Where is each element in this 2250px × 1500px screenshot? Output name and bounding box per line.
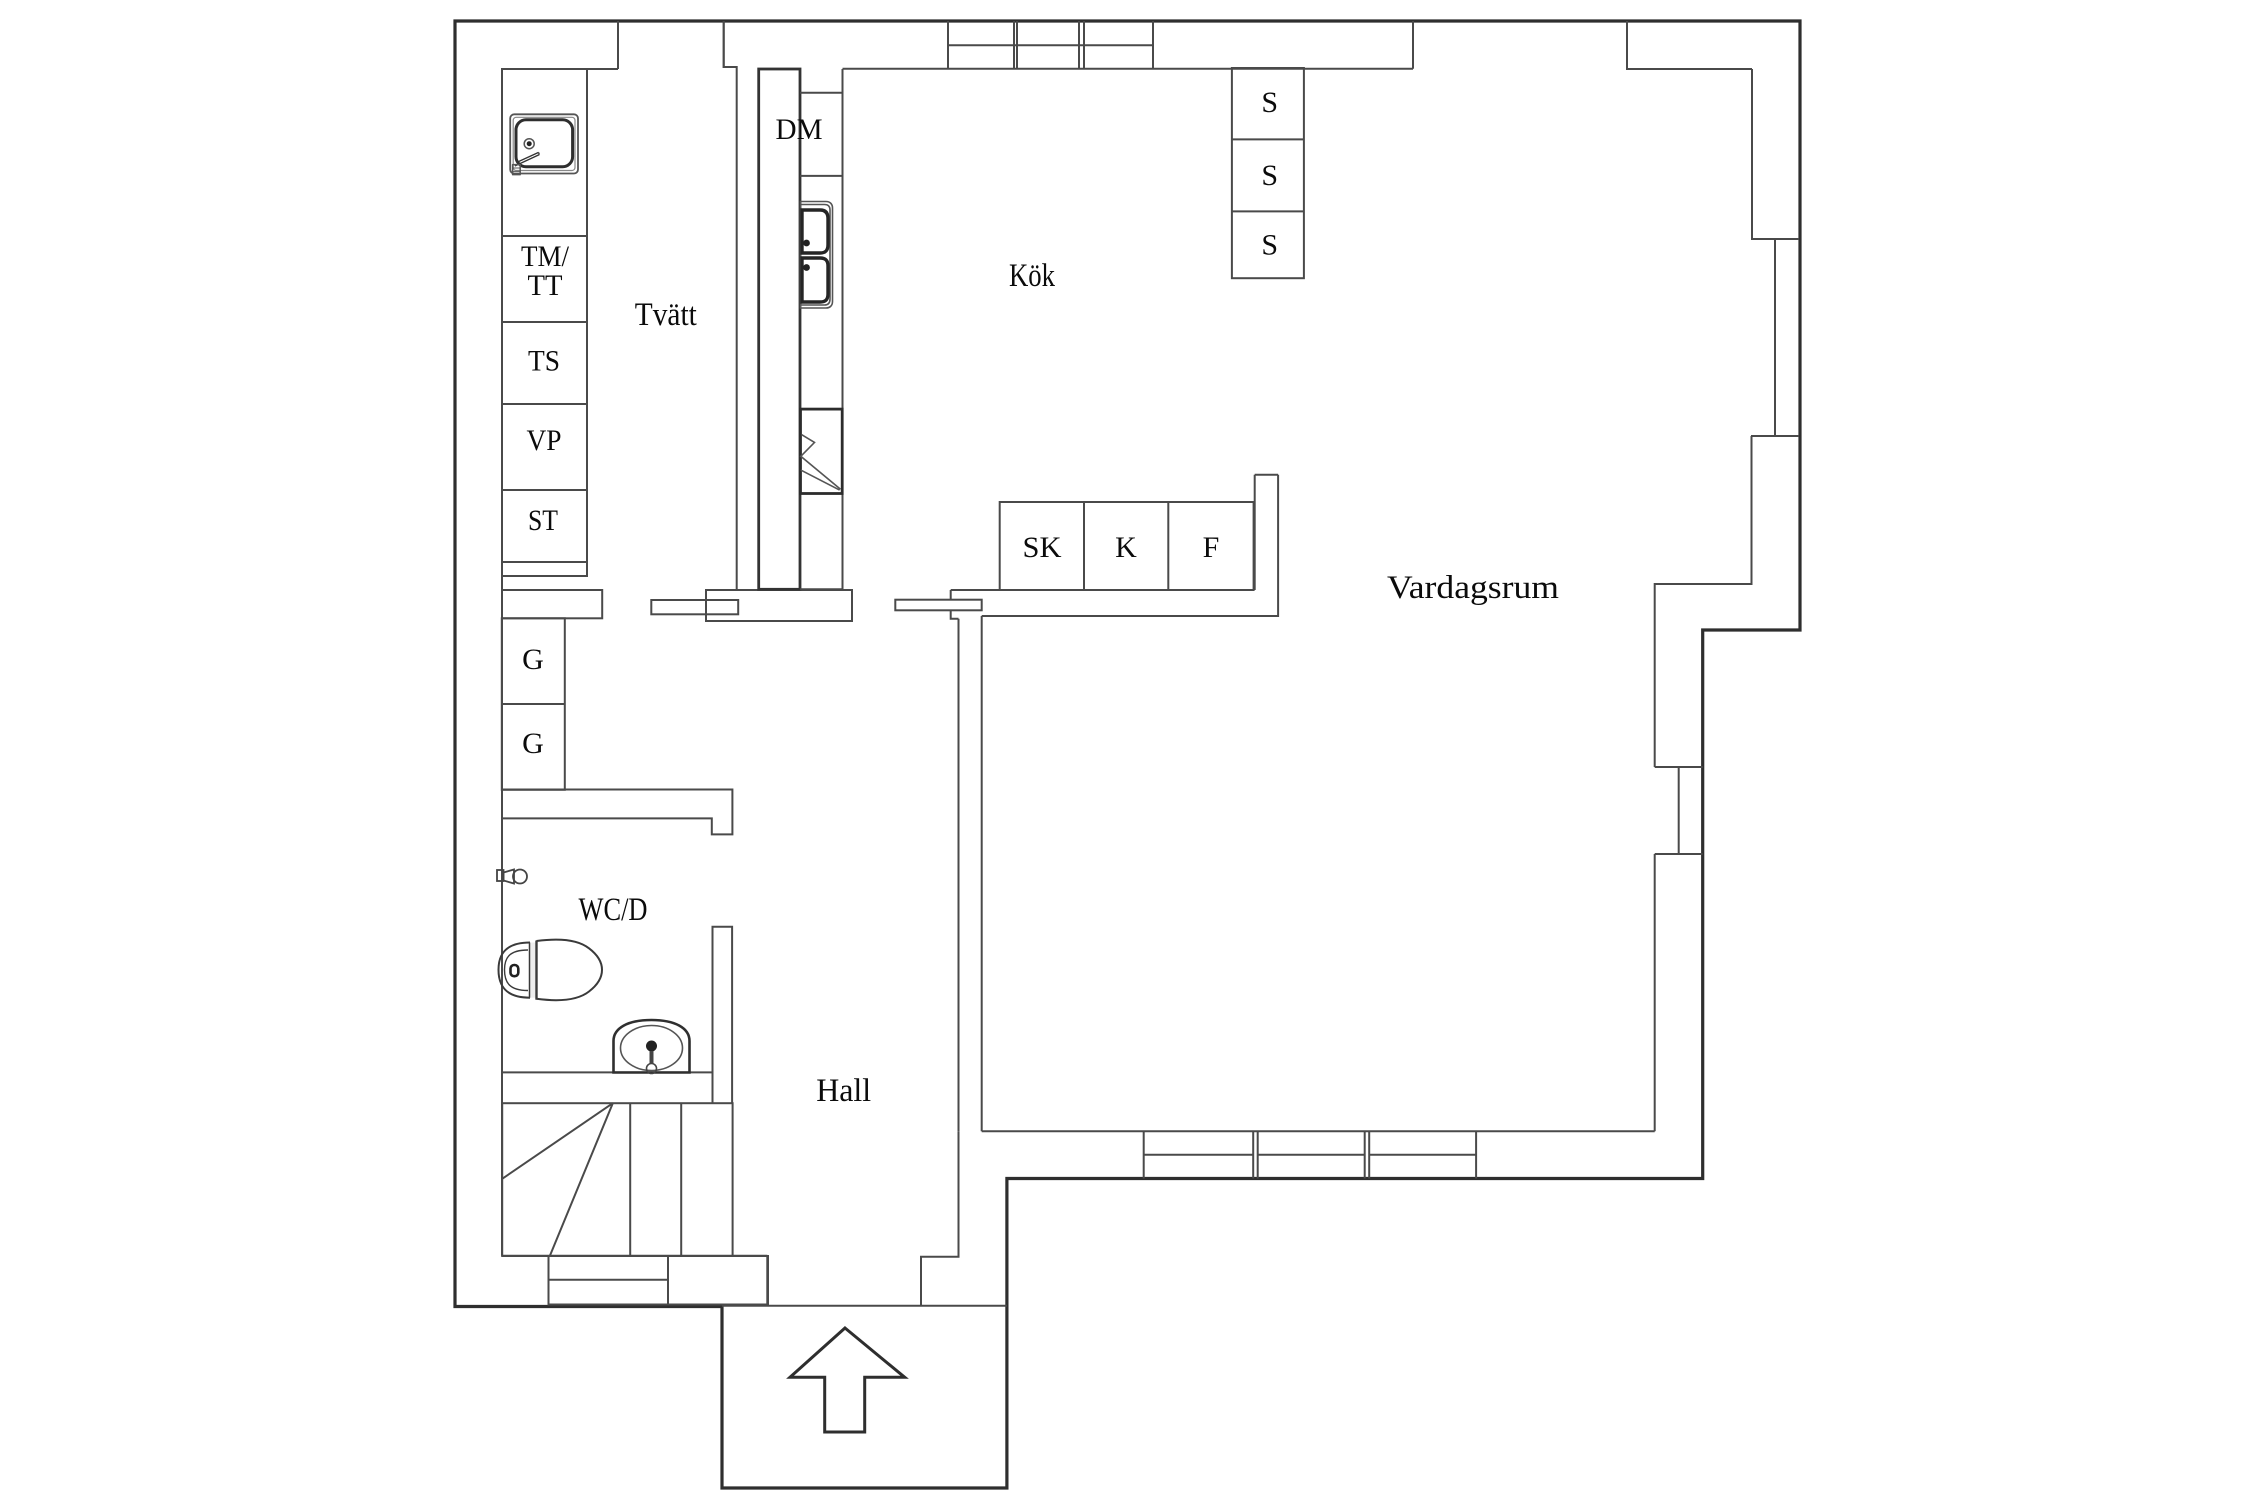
svg-text:WC/D: WC/D: [579, 892, 648, 928]
svg-text:VP: VP: [527, 424, 562, 457]
svg-text:Kök: Kök: [1009, 258, 1055, 294]
svg-text:S: S: [1261, 228, 1278, 261]
svg-text:TT: TT: [528, 269, 563, 302]
svg-text:Vardagsrum: Vardagsrum: [1387, 570, 1559, 606]
svg-text:ST: ST: [528, 504, 558, 537]
svg-text:G: G: [522, 643, 544, 676]
svg-text:K: K: [1115, 531, 1137, 564]
svg-text:S: S: [1261, 159, 1278, 192]
svg-text:DM: DM: [776, 113, 823, 146]
svg-text:G: G: [522, 727, 544, 760]
svg-text:SK: SK: [1023, 531, 1062, 564]
svg-text:F: F: [1203, 531, 1220, 564]
svg-text:TS: TS: [528, 345, 560, 378]
svg-text:Tvätt: Tvätt: [635, 297, 697, 333]
svg-text:Hall: Hall: [816, 1073, 871, 1109]
svg-text:S: S: [1261, 86, 1278, 119]
